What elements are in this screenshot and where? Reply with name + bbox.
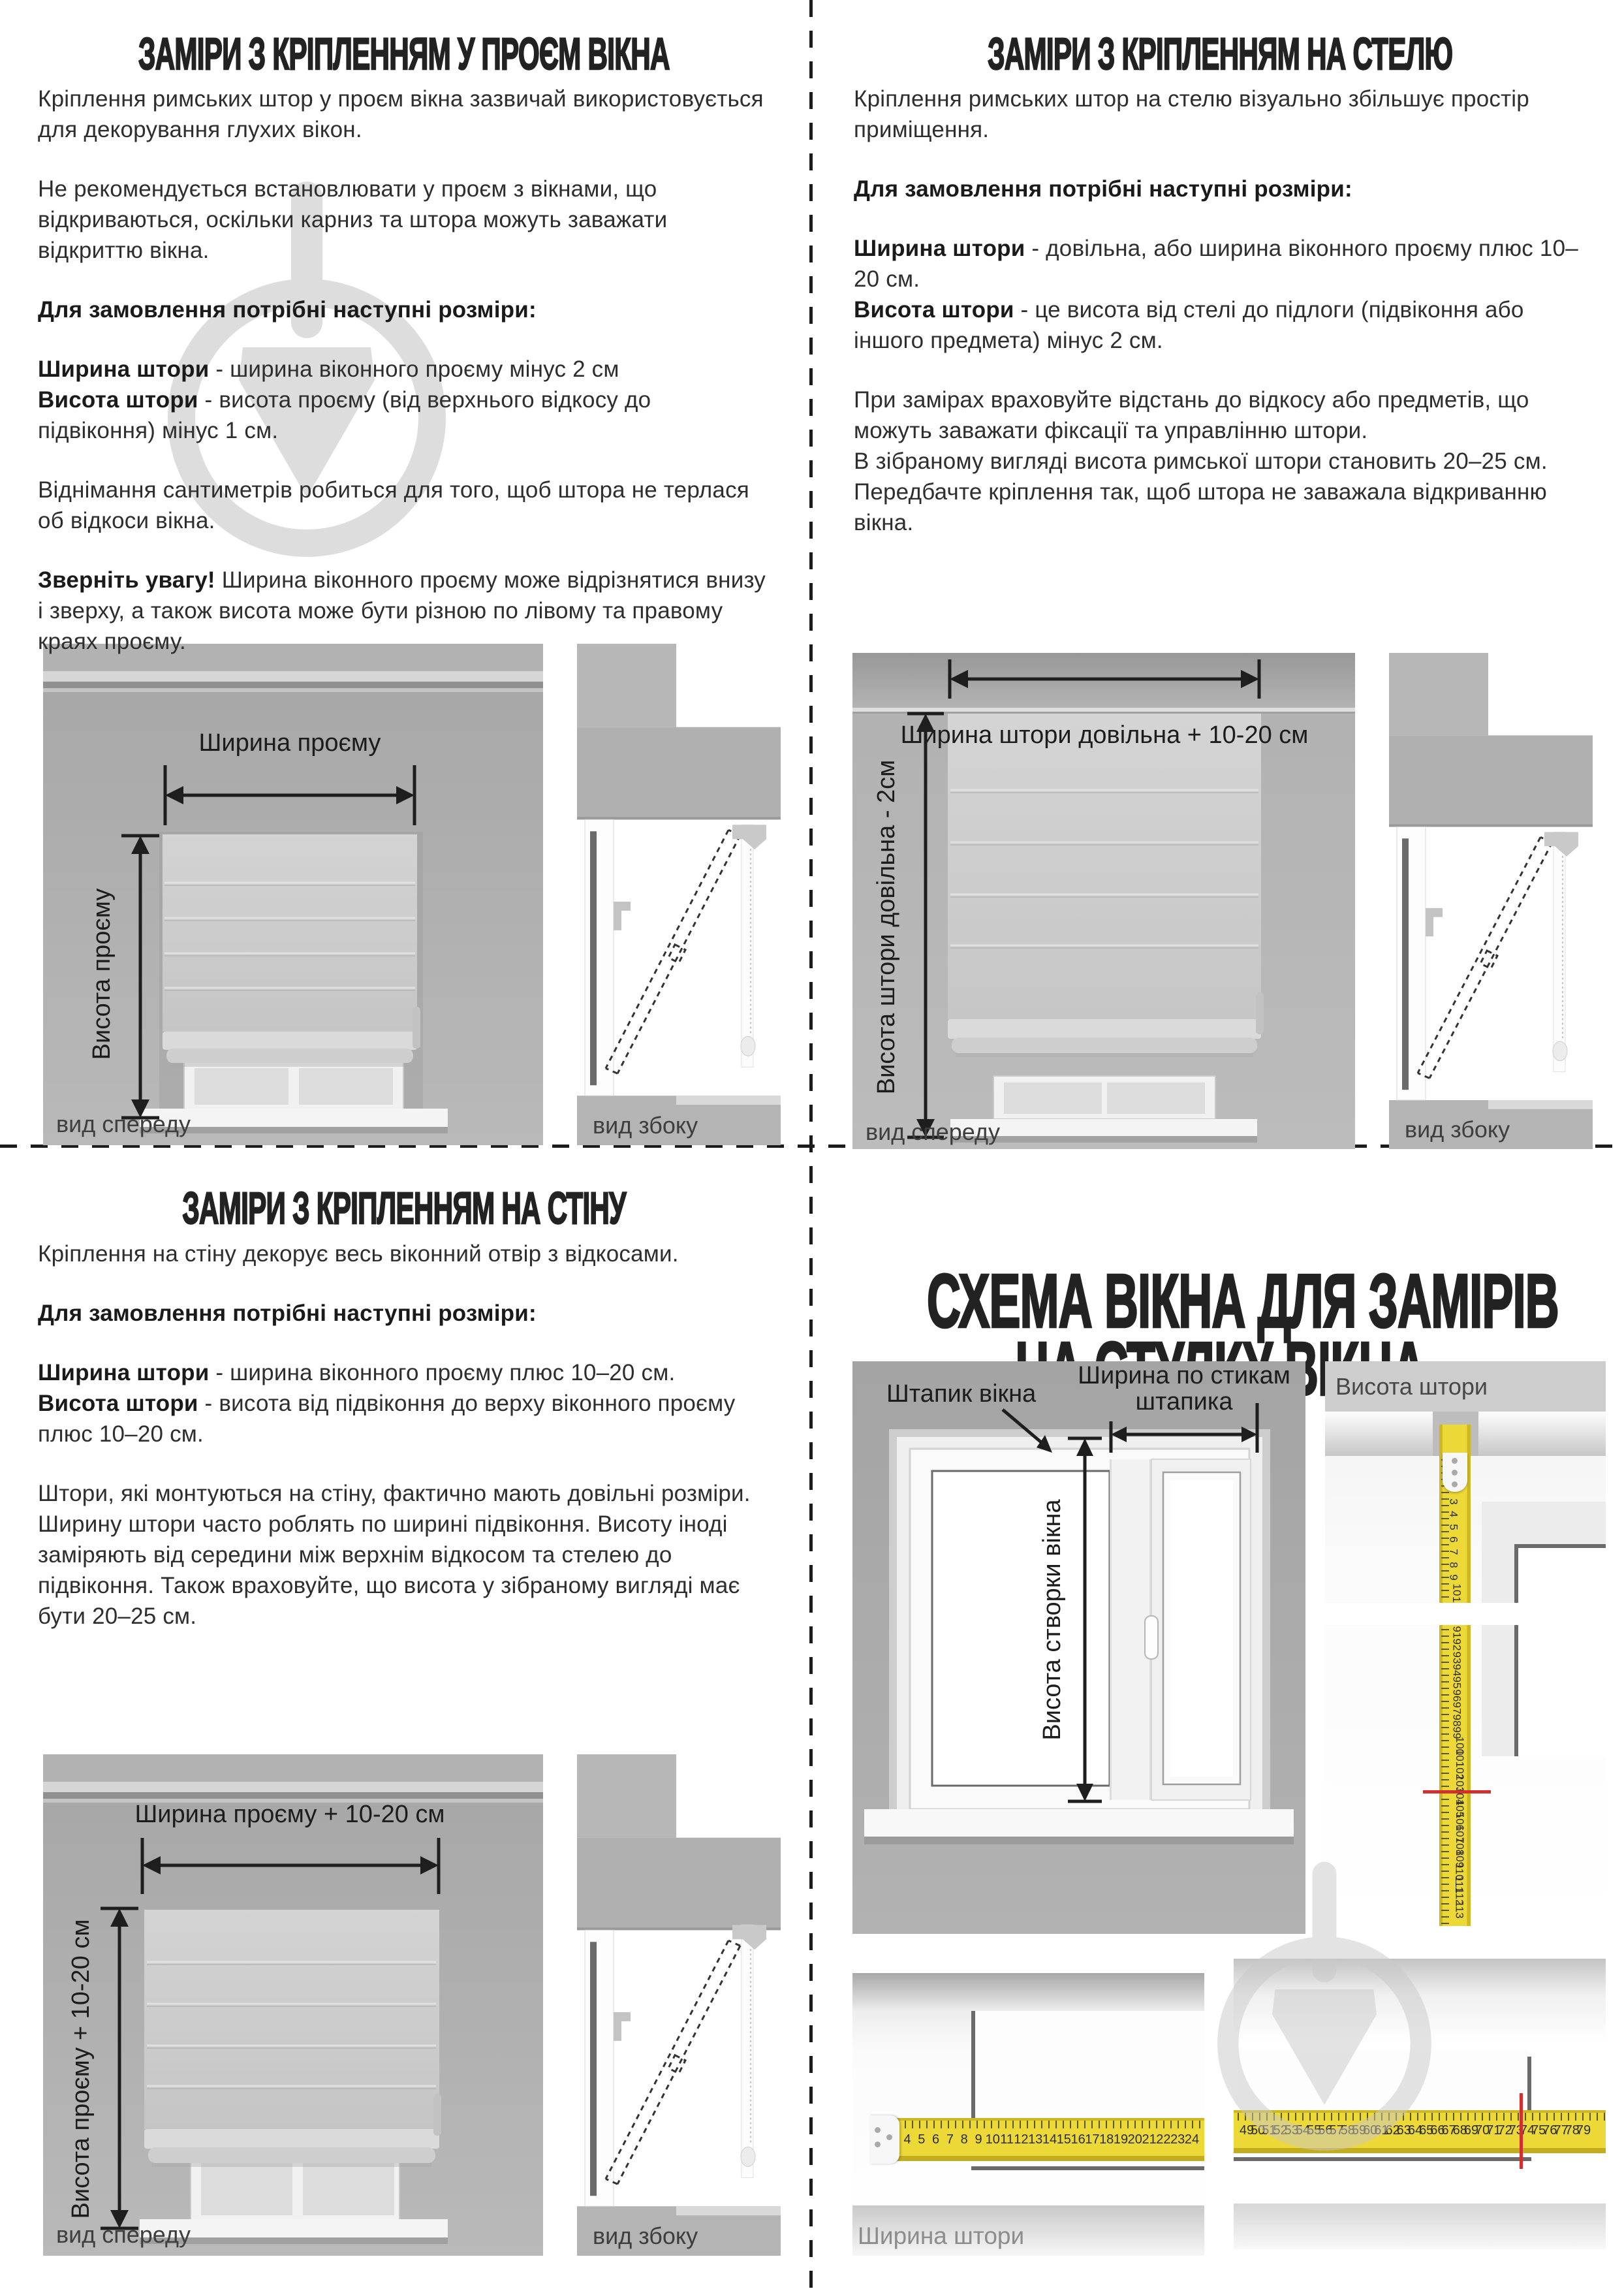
tape-number: 11 bbox=[1000, 2132, 1014, 2147]
paragraph: Кріплення римських штор у проєм вікна за… bbox=[38, 84, 774, 145]
curtain-width-label: Ширина штори bbox=[858, 2222, 1024, 2250]
order-heading: Для замовлення потрібні наступні розміри… bbox=[854, 174, 1590, 204]
window-latch bbox=[614, 2012, 631, 2041]
paragraph: Кріплення римських штор на стелю візуаль… bbox=[854, 84, 1590, 145]
tape-number: 14 bbox=[1042, 2132, 1057, 2147]
section-mount-in-opening: ЗАМІРИ З КРІПЛЕННЯМ У ПРОЄМ ВІКНА Кріпле… bbox=[0, 0, 808, 1143]
height-arrow-label: Висота проєму bbox=[88, 889, 116, 1060]
order-heading: Для замовлення потрібні наступні розміри… bbox=[38, 294, 774, 325]
side-view-illustration: вид збоку bbox=[1389, 653, 1593, 1149]
side-view-caption: вид збоку bbox=[1405, 1116, 1510, 1143]
tape-number: 12 bbox=[1014, 2132, 1028, 2147]
sash-height-label: Висота створки вікна bbox=[1038, 1499, 1066, 1741]
window-latch bbox=[614, 902, 631, 930]
roman-blind bbox=[948, 714, 1264, 1057]
tape-number: 7 bbox=[1447, 1549, 1460, 1555]
tilted-sash-outline bbox=[606, 830, 740, 1073]
order-heading: Для замовлення потрібні наступні розміри… bbox=[38, 1298, 774, 1329]
section-title: ЗАМІРИ З КРІПЛЕННЯМ НА СТЕЛЮ bbox=[816, 33, 1624, 76]
tape-number: 91 bbox=[1450, 1626, 1463, 1639]
tape-number: 23 bbox=[1170, 2132, 1185, 2147]
blind-side-profile bbox=[732, 825, 766, 1067]
tape-number: 97 bbox=[1450, 1701, 1463, 1714]
front-view-caption: вид спереду bbox=[866, 1118, 1000, 1145]
tape-number: 3 bbox=[1447, 1498, 1460, 1504]
tape-number: 5 bbox=[1447, 1524, 1460, 1530]
brand-watermark-trowel-icon bbox=[1209, 1848, 1440, 2159]
height-arrow-label: Висота штори довільна - 2см bbox=[873, 760, 900, 1095]
tape-end-clip bbox=[1443, 1453, 1467, 1492]
side-view-illustration: вид збоку bbox=[577, 1754, 781, 2256]
front-view-caption: вид спереду bbox=[56, 2221, 191, 2248]
tape-number: 5 bbox=[918, 2132, 925, 2147]
front-view-illustration: Ширина проєму Висота проєму вид спереду bbox=[43, 644, 543, 1145]
glazing-bead-label: Штапик вікна bbox=[886, 1380, 1037, 1408]
side-view-caption: вид збоку bbox=[593, 1112, 698, 1139]
tape-number: 9 bbox=[975, 2132, 982, 2147]
section-text: Кріплення на стіну декорує весь віконний… bbox=[38, 1239, 774, 1660]
side-view-caption: вид збоку bbox=[593, 2222, 698, 2249]
front-view-caption: вид спереду bbox=[56, 1111, 191, 1137]
tape-number: 22 bbox=[1156, 2132, 1170, 2147]
tape-number: 9 bbox=[1447, 1574, 1460, 1580]
tape-number: 7 bbox=[946, 2132, 954, 2147]
tape-number: 92 bbox=[1450, 1639, 1463, 1651]
size-definitions: Ширина штори - ширина віконного проєму м… bbox=[38, 354, 774, 446]
fixed-pane-glass bbox=[932, 1471, 1110, 1786]
tape-number: 10 bbox=[1450, 1584, 1463, 1596]
tape-number: 6 bbox=[1447, 1536, 1460, 1542]
bead-width-label-line2: штапика bbox=[1136, 1388, 1234, 1415]
tape-number: 10 bbox=[986, 2132, 1000, 2147]
curtain-height-photo: Висота штори 345678910119192939495969798… bbox=[1325, 1361, 1606, 1926]
front-view-illustration: Ширина штори довільна + 10-20 см Висота … bbox=[852, 653, 1355, 1149]
blind-side-profile bbox=[732, 1925, 766, 2177]
size-definitions: Ширина штори - довільна, або ширина віко… bbox=[854, 233, 1590, 356]
blind-side-profile bbox=[1544, 832, 1578, 1071]
tape-number: 79 bbox=[1576, 2123, 1591, 2138]
note-paragraph: Зверніть увагу! Ширина віконного проєму … bbox=[38, 565, 774, 657]
roman-blind bbox=[163, 834, 420, 1067]
paragraph: При замірах враховуйте відстань до відко… bbox=[854, 385, 1590, 538]
roman-blind bbox=[144, 1910, 441, 2167]
tape-number: 98 bbox=[1450, 1714, 1463, 1727]
openable-sash bbox=[1145, 1459, 1251, 1800]
section-title: ЗАМІРИ З КРІПЛЕННЯМ НА СТІНУ bbox=[0, 1187, 808, 1230]
window-latch bbox=[1426, 908, 1443, 936]
paragraph: Не рекомендується встановлювати у проєм … bbox=[38, 174, 774, 266]
measurement-instruction-sheet: { "quadrants": { "tl": { "title": "ЗАМІР… bbox=[0, 0, 1624, 2291]
tilted-sash-outline bbox=[1418, 837, 1552, 1078]
tape-end-clip bbox=[869, 2115, 899, 2164]
tape-number: 4 bbox=[903, 2132, 911, 2147]
section-mount-to-wall: ЗАМІРИ З КРІПЛЕННЯМ НА СТІНУ Кріплення н… bbox=[0, 1151, 808, 2291]
paragraph: Кріплення на стіну декорує весь віконний… bbox=[38, 1239, 774, 1269]
section-title: ЗАМІРИ З КРІПЛЕННЯМ У ПРОЄМ ВІКНА bbox=[0, 33, 808, 76]
tape-number: 18 bbox=[1099, 2132, 1114, 2147]
tape-number: 93 bbox=[1450, 1651, 1463, 1664]
section-text: Кріплення римських штор у проєм вікна за… bbox=[38, 84, 774, 686]
section-text: Кріплення римських штор на стелю візуаль… bbox=[854, 84, 1590, 567]
paragraph: Штори, які монтуються на стіну, фактично… bbox=[38, 1478, 774, 1632]
window-handle bbox=[1145, 1616, 1158, 1659]
tape-number: 113 bbox=[1453, 1901, 1466, 1918]
bead-width-label-line1: Ширина по стикам bbox=[1078, 1362, 1290, 1389]
red-measure-mark bbox=[1520, 2093, 1523, 2169]
tape-number: 94 bbox=[1450, 1664, 1463, 1676]
side-view-illustration: вид збоку bbox=[577, 644, 781, 1145]
section-mount-to-ceiling: ЗАМІРИ З КРІПЛЕННЯМ НА СТЕЛЮ Кріплення р… bbox=[816, 0, 1624, 1143]
tape-number: 4 bbox=[1447, 1511, 1460, 1517]
tape-number: 15 bbox=[1057, 2132, 1071, 2147]
tape-number: 24 bbox=[1185, 2132, 1199, 2147]
tape-number: 19 bbox=[1114, 2132, 1128, 2147]
tape-number: 13 bbox=[1028, 2132, 1042, 2147]
width-arrow-label: Ширина проєму bbox=[199, 729, 381, 757]
tape-number: 21 bbox=[1142, 2132, 1156, 2147]
size-definitions: Ширина штори - ширина віконного проєму п… bbox=[38, 1357, 774, 1449]
tape-number: 17 bbox=[1085, 2132, 1099, 2147]
height-arrow-label: Висота проєму + 10-20 см bbox=[67, 1920, 95, 2219]
photo-seam bbox=[1325, 1603, 1606, 1625]
tape-number: 8 bbox=[1447, 1562, 1460, 1568]
paragraph: Віднімання сантиметрів робиться для того… bbox=[38, 475, 774, 536]
tilted-sash-outline bbox=[606, 1940, 740, 2184]
front-view-illustration: Ширина проєму + 10-20 см Висота проєму +… bbox=[43, 1754, 543, 2256]
tape-number: 96 bbox=[1450, 1689, 1463, 1701]
width-arrow-label: Ширина штори довільна + 10-20 см bbox=[901, 721, 1309, 749]
curtain-width-photo-left: 456789101112131415161718192021222324 Шир… bbox=[852, 1973, 1204, 2256]
red-measure-mark bbox=[1423, 1790, 1491, 1793]
tape-number: 6 bbox=[932, 2132, 939, 2147]
tape-number: 95 bbox=[1450, 1677, 1463, 1689]
tape-number: 20 bbox=[1128, 2132, 1142, 2147]
width-arrow-label: Ширина проєму + 10-20 см bbox=[134, 1801, 445, 1828]
tape-number: 16 bbox=[1070, 2132, 1085, 2147]
tape-number: 8 bbox=[961, 2132, 968, 2147]
